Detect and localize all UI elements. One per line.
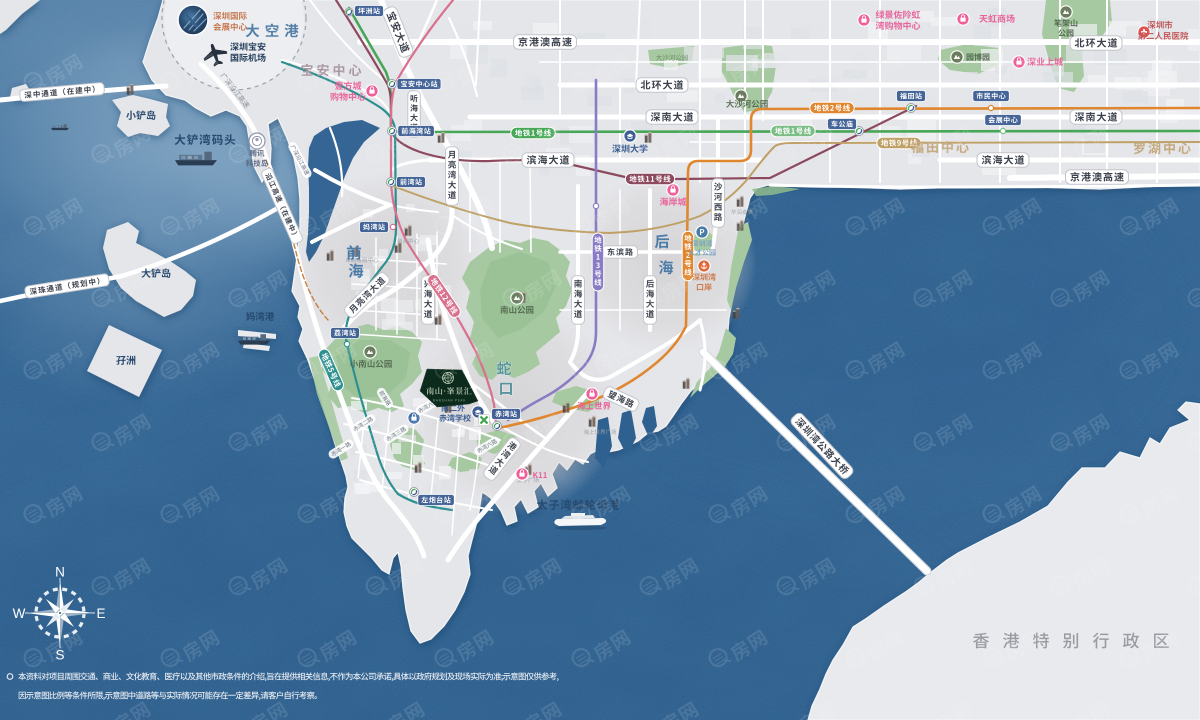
svg-text:W: W xyxy=(13,606,26,621)
svg-text:N: N xyxy=(55,565,65,580)
svg-text:E: E xyxy=(96,606,105,621)
